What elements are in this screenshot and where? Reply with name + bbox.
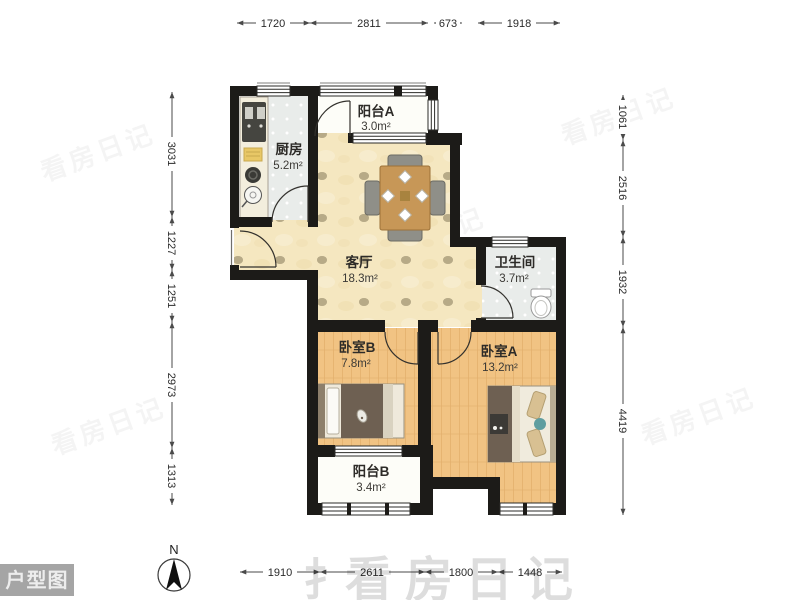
room-label-kitchen: 厨房 bbox=[276, 141, 303, 157]
room-label-bedroom-b: 卧室B bbox=[339, 339, 376, 355]
wall-left-lower-vertical bbox=[307, 270, 318, 515]
cutting-board-icon bbox=[244, 148, 262, 161]
balcony-b-floor bbox=[315, 451, 424, 507]
wall-bathroom-left bbox=[476, 247, 486, 285]
dimensions-right: 1061 2516 1932 4419 bbox=[616, 95, 630, 515]
dim-top-4: 1918 bbox=[507, 18, 531, 30]
wall-step-bottom-left bbox=[230, 270, 318, 280]
chair-icon bbox=[365, 181, 380, 215]
corner-tag-text: 户型图 bbox=[6, 568, 69, 592]
wall-mid-band bbox=[307, 320, 385, 332]
room-label-bedroom-a: 卧室A bbox=[481, 343, 518, 359]
balcony-b-window bbox=[322, 503, 410, 515]
dim-right-4: 4419 bbox=[616, 409, 628, 433]
wall-right bbox=[556, 237, 566, 515]
wall-living-right bbox=[450, 133, 460, 247]
pot-icon bbox=[245, 187, 262, 204]
dim-left-2: 1227 bbox=[165, 231, 177, 255]
room-label-balcony-b: 阳台B bbox=[353, 463, 390, 479]
double-bed-icon bbox=[488, 386, 556, 462]
floor-plan-canvas: 看房日记 看房日记 看房日记 看房日记 看房日记 bbox=[0, 0, 800, 600]
dim-right-1: 1061 bbox=[616, 105, 628, 129]
bedroom-b-slider bbox=[335, 446, 402, 456]
toilet-icon bbox=[531, 289, 551, 318]
wall-kitchen-right bbox=[308, 86, 318, 227]
dim-left-5: 1313 bbox=[165, 464, 177, 488]
room-area-bedroom-b: 7.8m² bbox=[341, 358, 371, 370]
compass: N bbox=[158, 542, 190, 591]
nightstand-icon bbox=[490, 414, 508, 434]
dim-left-3: 1251 bbox=[165, 284, 177, 308]
brand-watermark-text: 看房日记 bbox=[345, 554, 585, 600]
dim-left-4: 2973 bbox=[165, 373, 177, 397]
wall-bedroom-b-bottom bbox=[307, 445, 335, 457]
room-area-kitchen: 5.2m² bbox=[273, 160, 303, 172]
stove-icon bbox=[245, 167, 261, 183]
chair-icon bbox=[430, 181, 445, 215]
bathroom-window bbox=[492, 237, 528, 247]
balcony-a-side-window bbox=[428, 100, 438, 130]
wall-left-upper bbox=[230, 86, 239, 228]
pillow-icon bbox=[327, 388, 339, 434]
bedroom-a-window bbox=[500, 503, 553, 515]
room-area-balcony-a: 3.0m² bbox=[361, 121, 391, 133]
room-label-bathroom: 卫生间 bbox=[495, 254, 536, 270]
dim-top-3: 673 bbox=[439, 18, 457, 30]
room-area-bedroom-a: 13.2m² bbox=[482, 362, 518, 374]
single-bed-icon bbox=[318, 384, 404, 438]
tiled-watermark: 看房日记 bbox=[47, 392, 170, 461]
dimensions-left: 3031 1227 1251 2973 1313 bbox=[165, 92, 179, 505]
dim-left-1: 3031 bbox=[165, 142, 177, 166]
round-pillow-icon bbox=[534, 418, 546, 430]
balcony-a-top-window bbox=[320, 83, 426, 96]
brand-logo-mark: 扌 bbox=[303, 556, 347, 600]
dim-right-2: 2516 bbox=[616, 176, 628, 200]
tiled-watermark: 看房日记 bbox=[37, 118, 160, 187]
wall-between-bedrooms bbox=[418, 332, 431, 457]
corner-tag: 户型图 bbox=[0, 564, 74, 596]
brand-watermark: 扌 看房日记 bbox=[303, 554, 585, 600]
balcony-a-inner-window bbox=[353, 133, 426, 143]
kitchen-counter-icon bbox=[240, 97, 268, 219]
kitchen-window bbox=[257, 83, 290, 96]
wall-kitchen-bottom bbox=[230, 217, 272, 227]
room-area-balcony-b: 3.4m² bbox=[356, 482, 386, 494]
compass-north-label: N bbox=[169, 542, 178, 557]
dim-top-2: 2811 bbox=[357, 18, 381, 30]
room-area-bathroom: 3.7m² bbox=[499, 273, 529, 285]
room-label-living: 客厅 bbox=[345, 254, 373, 270]
tiled-watermark: 看房日记 bbox=[637, 382, 760, 451]
room-area-living: 18.3m² bbox=[342, 273, 378, 285]
dimensions-top: 1720 2811 673 1918 bbox=[237, 16, 560, 30]
dim-bottom-1: 1910 bbox=[268, 567, 292, 579]
room-label-balcony-a: 阳台A bbox=[358, 103, 395, 119]
dim-right-3: 1932 bbox=[616, 270, 628, 294]
dim-top-1: 1720 bbox=[261, 18, 285, 30]
